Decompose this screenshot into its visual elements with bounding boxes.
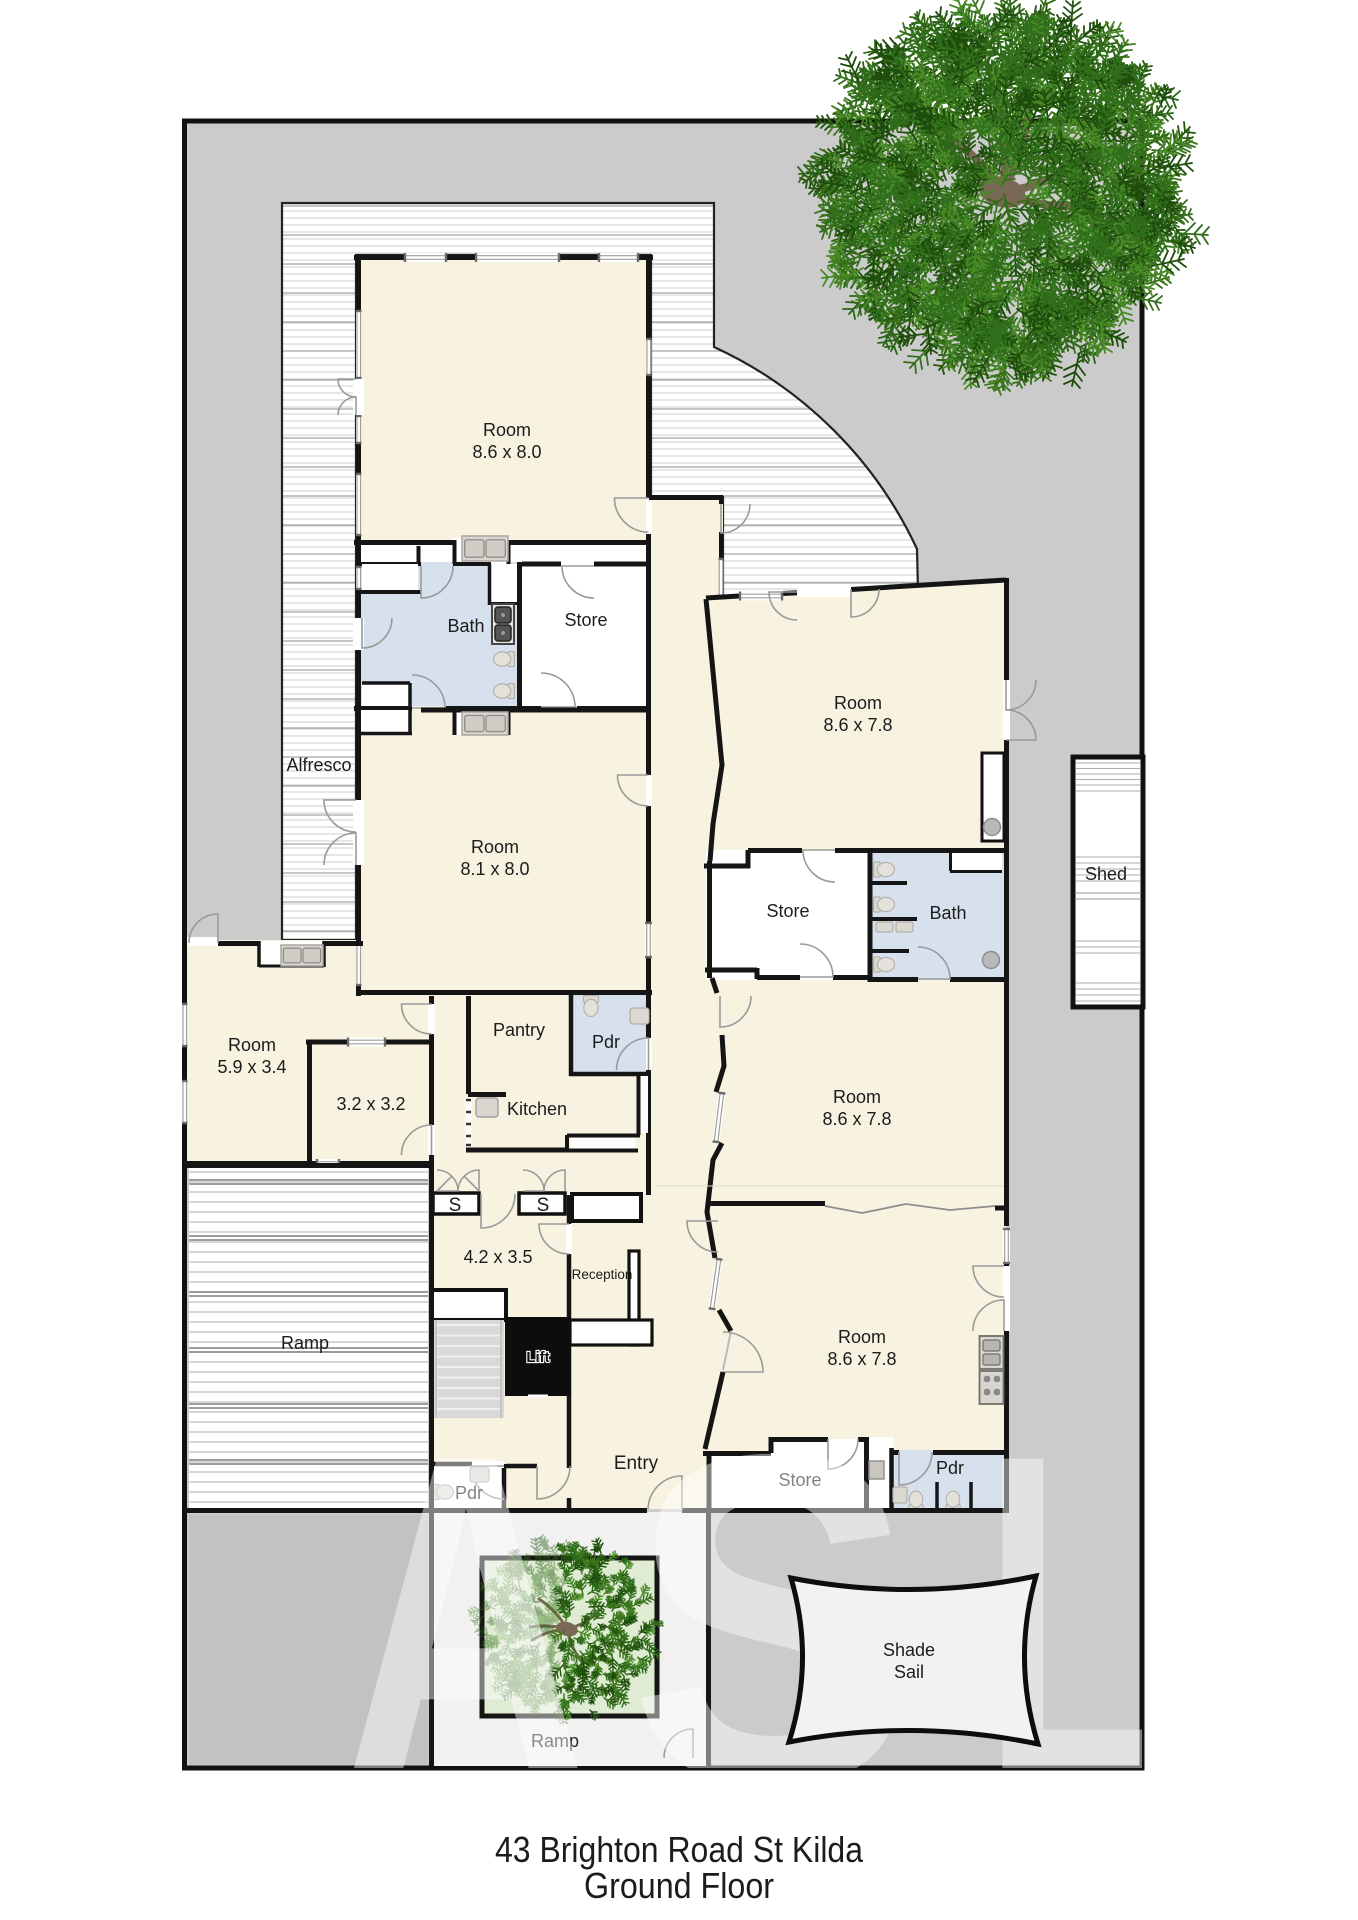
svg-text:Ramp: Ramp <box>281 1333 329 1353</box>
svg-text:Room: Room <box>833 1087 881 1107</box>
svg-text:8.6 x 8.0: 8.6 x 8.0 <box>472 442 541 462</box>
svg-text:Shade: Shade <box>883 1640 935 1660</box>
svg-text:8.6 x 7.8: 8.6 x 7.8 <box>822 1109 891 1129</box>
svg-text:Pantry: Pantry <box>493 1020 545 1040</box>
svg-text:Pdr: Pdr <box>592 1032 620 1052</box>
svg-text:Bath: Bath <box>929 903 966 923</box>
svg-text:43 Brighton Road St Kilda: 43 Brighton Road St Kilda <box>495 1829 864 1870</box>
svg-text:Room: Room <box>471 837 519 857</box>
svg-text:Room: Room <box>838 1327 886 1347</box>
svg-text:3.2 x 3.2: 3.2 x 3.2 <box>336 1094 405 1114</box>
svg-text:Kitchen: Kitchen <box>507 1099 567 1119</box>
svg-text:S: S <box>449 1195 462 1216</box>
svg-text:Ground Floor: Ground Floor <box>584 1865 774 1906</box>
svg-text:Alfresco: Alfresco <box>286 755 351 775</box>
svg-text:8.6 x 7.8: 8.6 x 7.8 <box>823 715 892 735</box>
svg-text:Room: Room <box>228 1035 276 1055</box>
svg-text:Room: Room <box>834 693 882 713</box>
svg-text:Store: Store <box>766 901 809 921</box>
svg-text:Pdr: Pdr <box>936 1458 964 1478</box>
svg-text:Room: Room <box>483 420 531 440</box>
svg-text:S: S <box>537 1195 550 1216</box>
svg-text:Sail: Sail <box>894 1662 924 1682</box>
svg-text:8.1 x 8.0: 8.1 x 8.0 <box>460 859 529 879</box>
svg-text:Reception: Reception <box>572 1267 633 1282</box>
svg-text:5.9 x 3.4: 5.9 x 3.4 <box>217 1057 286 1077</box>
svg-text:Store: Store <box>564 610 607 630</box>
svg-text:Bath: Bath <box>447 616 484 636</box>
svg-text:Shed: Shed <box>1085 864 1127 884</box>
svg-text:4.2 x 3.5: 4.2 x 3.5 <box>463 1247 532 1267</box>
